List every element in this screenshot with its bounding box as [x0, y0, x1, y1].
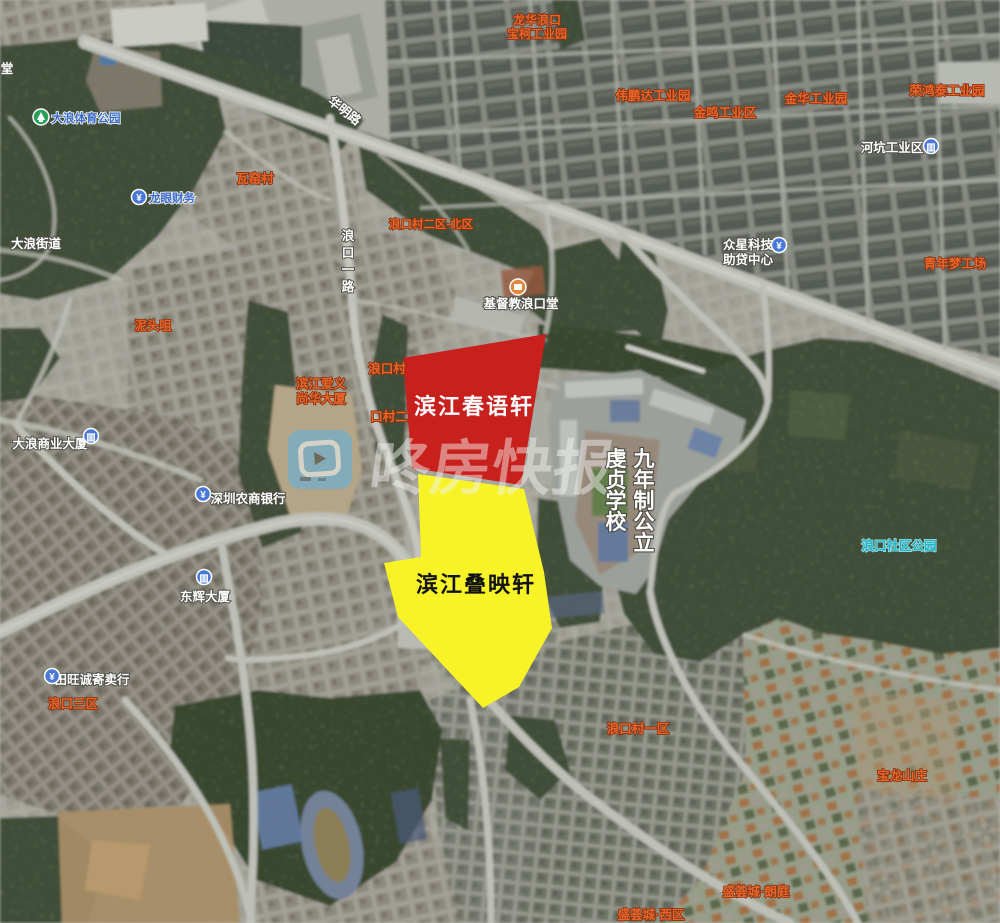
- svg-text:九: 九: [633, 448, 655, 471]
- svg-text:公: 公: [634, 511, 655, 534]
- svg-text:一: 一: [342, 263, 355, 277]
- svg-text:大浪街道: 大浪街道: [11, 236, 62, 251]
- svg-text:¥: ¥: [136, 193, 142, 204]
- svg-text:瓦窑村: 瓦窑村: [236, 171, 274, 186]
- svg-text:¥: ¥: [776, 241, 782, 252]
- svg-text:东辉大厦: 东辉大厦: [180, 589, 231, 604]
- svg-text:宝龙山庄: 宝龙山庄: [877, 768, 928, 783]
- svg-text:浪口村: 浪口村: [368, 361, 406, 376]
- svg-text:大浪商业大厦: 大浪商业大厦: [12, 436, 88, 451]
- svg-text:基督教浪口堂: 基督教浪口堂: [482, 296, 558, 311]
- svg-text:众星科技: 众星科技: [723, 237, 774, 252]
- svg-text:金华工业园: 金华工业园: [784, 91, 848, 106]
- svg-text:龙眼财务: 龙眼财务: [148, 191, 195, 205]
- svg-text:贞: 贞: [606, 469, 627, 492]
- svg-text:▥: ▥: [199, 573, 208, 584]
- svg-text:¥: ¥: [49, 672, 55, 683]
- svg-text:年: 年: [634, 468, 655, 492]
- svg-text:荣鸿泰工业园: 荣鸿泰工业园: [908, 83, 984, 98]
- svg-text:滨江爱义: 滨江爱义: [296, 376, 347, 391]
- svg-text:青年梦工场: 青年梦工场: [924, 256, 987, 271]
- svg-text:路: 路: [342, 279, 355, 294]
- svg-text:盛荟城·西区: 盛荟城·西区: [618, 907, 685, 922]
- svg-text:¥: ¥: [200, 490, 206, 501]
- svg-text:制: 制: [634, 490, 655, 513]
- svg-text:伟鹏达工业园: 伟鹏达工业园: [615, 88, 690, 103]
- svg-text:尚华大厦: 尚华大厦: [296, 391, 347, 406]
- svg-text:浪口村一区: 浪口村一区: [607, 721, 670, 736]
- svg-text:▥: ▥: [86, 432, 95, 443]
- svg-text:深圳农商银行: 深圳农商银行: [210, 491, 286, 506]
- svg-text:田旺诚寄卖行: 田旺诚寄卖行: [54, 672, 130, 687]
- svg-text:浪口三区: 浪口三区: [48, 696, 99, 711]
- svg-text:盛荟城·朗庭: 盛荟城·朗庭: [723, 884, 790, 899]
- svg-text:校: 校: [606, 510, 628, 534]
- svg-text:堂: 堂: [1, 61, 14, 76]
- svg-text:口: 口: [342, 246, 355, 260]
- svg-text:立: 立: [634, 531, 655, 555]
- svg-text:浪口村二区-北区: 浪口村二区-北区: [389, 217, 474, 231]
- svg-text:滨江叠映轩: 滨江叠映轩: [416, 572, 536, 597]
- svg-text:虔: 虔: [606, 448, 627, 471]
- svg-text:浪口社区公园: 浪口社区公园: [861, 538, 936, 553]
- svg-text:助贷中心: 助贷中心: [723, 252, 774, 267]
- svg-text:学: 学: [606, 489, 627, 513]
- svg-text:口村二: 口村二: [370, 409, 408, 424]
- svg-text:滨江春语轩: 滨江春语轩: [414, 394, 534, 419]
- svg-text:咚房快报: 咚房快报: [365, 434, 618, 502]
- svg-text:▥: ▥: [926, 142, 935, 153]
- svg-text:龙华浪口: 龙华浪口: [513, 12, 561, 27]
- svg-text:浪: 浪: [342, 228, 355, 243]
- svg-text:金鸣工业区: 金鸣工业区: [693, 105, 757, 120]
- svg-text:大浪体育公园: 大浪体育公园: [52, 111, 121, 125]
- svg-text:泥头咀: 泥头咀: [134, 318, 172, 333]
- svg-text:河坑工业区: 河坑工业区: [861, 140, 924, 155]
- svg-text:宝柯工业园: 宝柯工业园: [507, 26, 567, 41]
